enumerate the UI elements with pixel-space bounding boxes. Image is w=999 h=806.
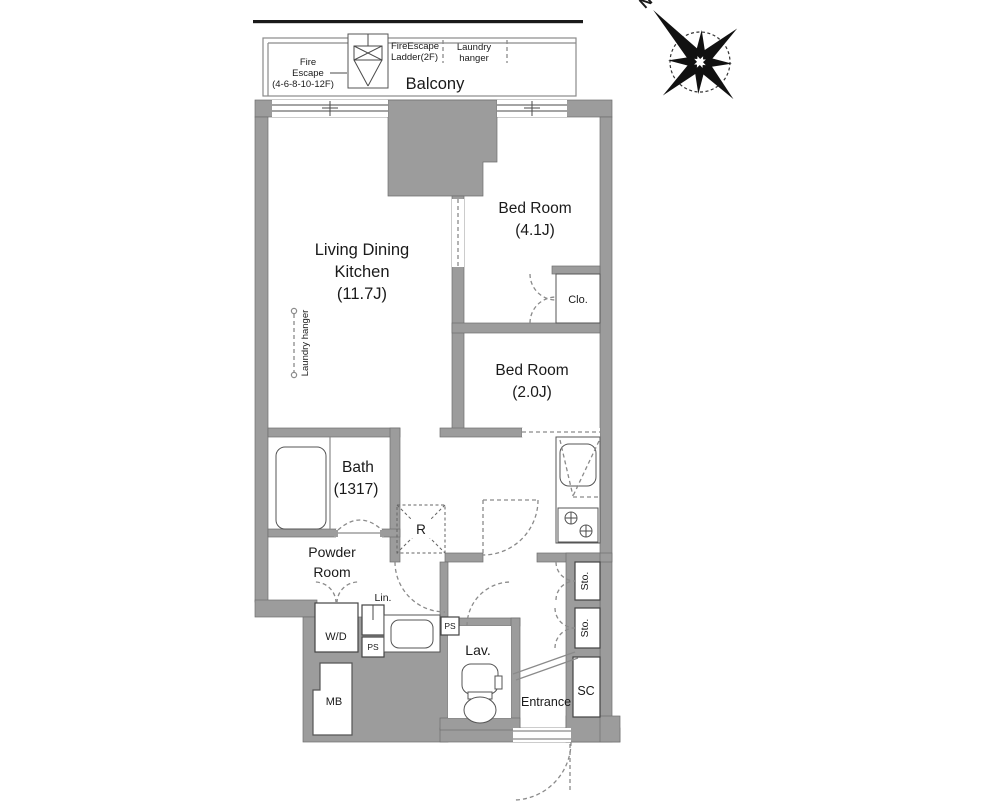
- ldk-laundry-hanger-label: Laundry hanger: [300, 310, 311, 377]
- washer-dryer-door-arc-left: [315, 582, 336, 603]
- window-bedroom1: [497, 100, 567, 117]
- meter-box-label: MB: [326, 696, 343, 708]
- compass-point-w: [659, 60, 701, 100]
- powder-room-label-2: Room: [313, 564, 350, 580]
- kitchen-counter: [556, 437, 600, 543]
- wall-powder-hall: [440, 562, 448, 618]
- ldk-label-1: Living Dining: [315, 241, 409, 259]
- balcony-area: Fire Escape (4-6-8-10-12F) FireEscape La…: [253, 20, 583, 96]
- compass-point-e: [699, 24, 741, 64]
- wall-bath-top: [268, 428, 400, 437]
- bath-size-label: (1317): [334, 481, 379, 498]
- fire-escape-ladder-label-1: FireEscape: [391, 41, 439, 52]
- compass-point-n: [648, 5, 703, 63]
- washer-dryer-space: [315, 603, 358, 652]
- storage-top-label: Sto.: [579, 572, 591, 591]
- window-ldk: [272, 100, 388, 117]
- fire-escape-hatch-icon: [348, 34, 388, 88]
- powder-room-label-1: Powder: [308, 544, 356, 560]
- sliding-opening-bedroom2-kitchen: [522, 428, 600, 437]
- closet-door-arc-bottom: [530, 297, 556, 323]
- shoe-closet-label: SC: [577, 684, 594, 698]
- wall-bath-bottom-left: [268, 529, 336, 537]
- washer-dryer-label: W/D: [325, 631, 346, 643]
- wall-bath-right: [390, 428, 400, 562]
- linen-closet: [362, 605, 384, 635]
- balcony-label: Balcony: [406, 75, 465, 93]
- compass-point-s: [698, 61, 738, 103]
- hall-door-arc: [483, 500, 538, 555]
- stove-burner-1: [565, 512, 577, 524]
- sliding-door-bath: [334, 520, 384, 538]
- entrance-door-opening: [513, 728, 571, 742]
- balcony-laundry-label-1: Laundry: [457, 42, 492, 53]
- wall-bedroom-divider: [452, 323, 600, 333]
- wall-right: [600, 117, 612, 742]
- fire-escape-label-2: Escape: [292, 68, 324, 79]
- floor-plan: Fire Escape (4-6-8-10-12F) FireEscape La…: [0, 0, 999, 801]
- pipe-space-left-label: PS: [367, 642, 379, 652]
- ldk-label-2: Kitchen: [334, 263, 389, 281]
- lavatory-label: Lav.: [465, 642, 490, 658]
- vanity-sink: [391, 620, 433, 648]
- ldk-size-label: (11.7J): [337, 285, 387, 303]
- vanity: [384, 615, 440, 652]
- pipe-space-right-label: PS: [444, 621, 456, 631]
- sliding-door-ldk-bedroom1: [452, 199, 464, 267]
- fire-escape-ladder-label-2: Ladder(2F): [391, 52, 438, 63]
- refrigerator-label: R: [416, 522, 426, 537]
- wall-left: [255, 117, 268, 602]
- compass-star: [616, 0, 771, 133]
- powder-door-arc: [395, 562, 445, 612]
- compass-rose: N: [603, 0, 770, 133]
- compass-north-label: N: [636, 0, 656, 12]
- wall-bedroom2-bottom: [440, 428, 522, 437]
- wall-left-step: [255, 600, 317, 617]
- stove-burner-2: [580, 525, 592, 537]
- ldk-laundry-hanger-icon: [291, 308, 296, 377]
- bath-label: Bath: [342, 459, 374, 476]
- linen-label: Lin.: [375, 592, 392, 604]
- fire-escape-label-1: Fire: [300, 57, 316, 68]
- structural-pillar: [388, 100, 497, 196]
- entrance-label: Entrance: [521, 695, 571, 709]
- fire-escape-floors-label: (4-6-8-10-12F): [272, 79, 334, 90]
- site-boundary-line: [253, 20, 583, 23]
- washer-dryer-door-arc-right: [337, 582, 358, 603]
- closet-door-arc-top: [530, 274, 556, 300]
- floor-plan-page: Fire Escape (4-6-8-10-12F) FireEscape La…: [0, 0, 999, 801]
- kitchen-sink: [560, 444, 596, 486]
- bedroom1-label: Bed Room: [498, 200, 571, 217]
- stove: [558, 508, 598, 542]
- bedroom2-size-label: (2.0J): [512, 384, 552, 401]
- entrance-door-arc: [513, 742, 571, 800]
- bathtub: [276, 447, 326, 529]
- closet-label: Clo.: [568, 294, 588, 306]
- balcony-laundry-label-2: hanger: [459, 53, 489, 64]
- wall-hall-a: [445, 553, 483, 562]
- bedroom1-size-label: (4.1J): [515, 222, 555, 239]
- bedroom2-label: Bed Room: [495, 362, 568, 379]
- storage-bottom-label: Sto.: [579, 619, 591, 638]
- wall-closet-top: [552, 266, 600, 274]
